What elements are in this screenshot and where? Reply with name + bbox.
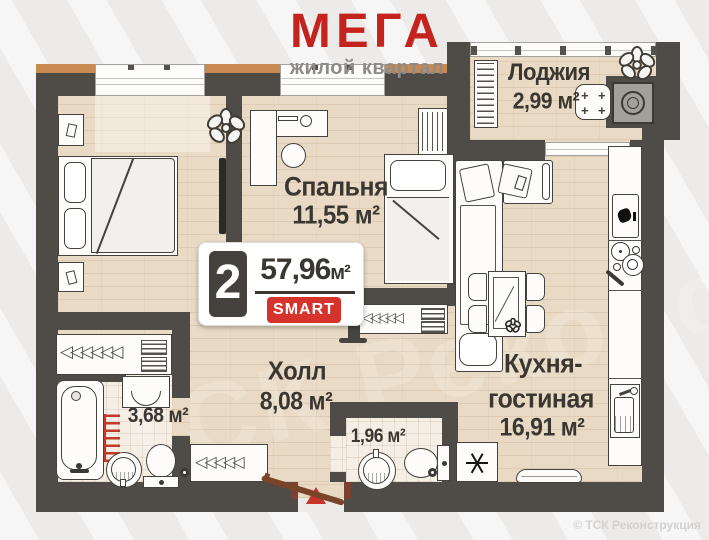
brand-title: МЕГА	[281, 8, 452, 56]
table-plant-icon	[505, 318, 521, 334]
badge-area: 57,96м²	[253, 253, 357, 287]
bed-single	[384, 154, 454, 284]
area-badge: 2 57,96м² SMART	[198, 242, 364, 326]
sofa-cushion	[497, 163, 533, 199]
nightstand	[58, 114, 84, 146]
toilet-tank	[143, 476, 179, 488]
floor-drain	[180, 468, 189, 477]
nightstand	[58, 262, 84, 292]
label-hall-name: Холл	[268, 356, 326, 387]
wall-right	[642, 120, 664, 512]
label-hall-area: 8,08 м²	[260, 388, 333, 417]
label-bathroom-area: 3,68 м²	[128, 404, 188, 428]
wardrobe	[418, 108, 448, 156]
chair	[468, 273, 487, 301]
shelving-unit	[474, 60, 498, 128]
pan	[622, 254, 644, 276]
rooms-count-tile: 2	[209, 251, 247, 317]
pillow	[64, 208, 86, 249]
label-wc-area: 1,96 м²	[351, 426, 405, 448]
copyright-watermark: © ТСК Реконструкция	[573, 518, 701, 532]
fridge	[456, 442, 498, 482]
desk-lamp	[300, 115, 312, 127]
chair	[468, 305, 487, 333]
closet-hangers: ◁◁◁◁◁	[190, 444, 268, 482]
floor-drain	[428, 468, 437, 477]
kitchen-sink	[610, 384, 640, 438]
bed-double	[58, 156, 178, 256]
tv	[219, 158, 226, 234]
toilet	[146, 444, 176, 478]
label-bedroom2-area: 11,55 м²	[292, 200, 379, 231]
brand-logo: МЕГА жилой квартал	[283, 8, 451, 80]
chair	[526, 273, 545, 301]
radiator	[516, 469, 582, 483]
stove-burner	[632, 246, 640, 254]
smart-tag: SMART	[267, 297, 341, 323]
window-bedroom	[95, 64, 205, 96]
door-jamb	[344, 482, 351, 499]
brand-subtitle: жилой квартал	[283, 57, 451, 80]
chair	[526, 305, 545, 333]
wall-wc-top	[330, 402, 458, 418]
blanket	[387, 197, 449, 281]
pillow	[64, 162, 86, 203]
label-kitchen-name-2: гостиная	[488, 384, 594, 415]
badge-underline	[255, 291, 355, 294]
pillow	[390, 160, 446, 191]
label-bedroom2-name: Спальня	[284, 172, 388, 203]
label-loggia-area: 2,99 м²	[513, 88, 580, 115]
toilet-tank	[437, 445, 450, 481]
closet-hangers: ◁◁◁◁◁	[358, 304, 448, 334]
door-gap-wc	[330, 436, 346, 472]
blanket	[91, 158, 175, 253]
pouf-table: ++ ++	[575, 84, 611, 120]
floor-plan: ТСК Реконструкция	[0, 0, 709, 540]
oven	[612, 194, 639, 238]
bathroom-sink	[106, 452, 142, 488]
dryer-machine	[612, 82, 654, 124]
bathtub	[56, 380, 104, 480]
plant-icon	[618, 46, 656, 84]
desk-keyboard	[278, 116, 298, 121]
label-kitchen-area: 16,91 м²	[500, 414, 585, 443]
bedroom-rug	[95, 96, 210, 152]
closet-hangers: ◁◁◁◁◁◁	[56, 334, 172, 375]
plant-icon	[206, 108, 246, 148]
label-kitchen-name-1: Кухня-	[504, 349, 582, 380]
smart-tag-label: SMART	[273, 301, 335, 318]
wc-sink	[358, 452, 396, 490]
wall-left	[36, 73, 58, 512]
wall-loggia-right	[656, 42, 680, 140]
label-loggia-name: Лоджия	[508, 59, 590, 87]
badge-area-unit: м²	[330, 262, 349, 284]
rooms-count: 2	[215, 256, 242, 309]
desk-return	[250, 110, 277, 186]
badge-foot	[339, 338, 367, 343]
stove-burner	[613, 263, 621, 271]
chair	[281, 143, 306, 168]
badge-area-value: 57,96	[260, 253, 330, 286]
wall-bedroom-south	[58, 312, 190, 330]
